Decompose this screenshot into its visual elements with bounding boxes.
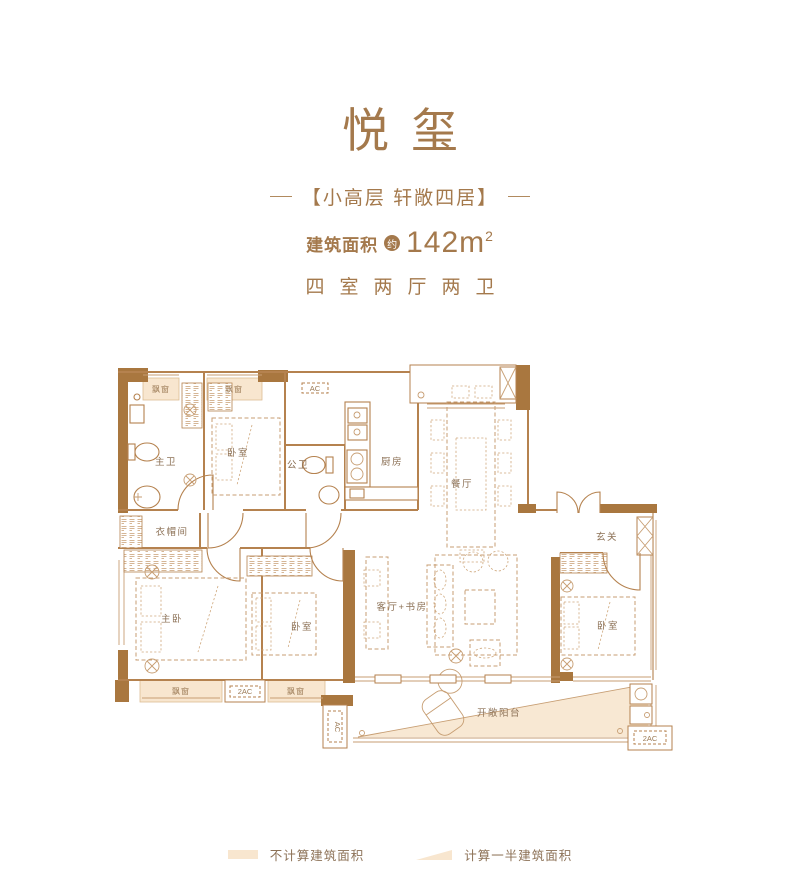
left-rule — [270, 196, 292, 197]
stove-icon — [347, 450, 367, 483]
washbasin-icon-2 — [319, 486, 339, 504]
ac-label-vertical: AC — [333, 722, 342, 733]
bay-windows-layer — [140, 378, 325, 702]
bay-window-label: 飘窗 — [172, 686, 190, 696]
toilet-tank-icon — [128, 444, 135, 460]
area-value: 142m2 — [406, 226, 494, 260]
room-label-master-bedroom: 主卧 — [161, 613, 183, 625]
ac-label: AC — [310, 384, 321, 393]
room-label-bedroom-top: 卧室 — [227, 447, 249, 459]
toilet-tank-icon-2 — [326, 457, 333, 473]
sliding-door-panel — [485, 675, 511, 683]
legend-swatch-triangle — [416, 850, 452, 860]
dining-table — [447, 402, 495, 547]
master-bedroom-door — [207, 548, 240, 581]
bed-master — [136, 578, 246, 660]
master-bedroom-wardrobe — [124, 550, 202, 572]
legend-label-no-area: 不计算建筑面积 — [270, 845, 365, 864]
subtitle: 【小高层 轩敞四居】 — [302, 183, 498, 210]
bedroom-mid-door — [310, 548, 343, 581]
header: 悦玺 【小高层 轩敞四居】 建筑面积 约 142m2 四室两厅两卫 — [0, 0, 800, 299]
right-rule — [508, 196, 530, 197]
furniture-layer — [136, 386, 635, 673]
room-label-living-study: 客厅+书房 — [376, 601, 427, 613]
legend: 不计算建筑面积 计算一半建筑面积 — [0, 845, 800, 864]
masterbath-door — [178, 475, 213, 510]
ac2-label: 2AC — [643, 734, 658, 743]
cabinet-icon — [630, 706, 652, 724]
room-layout-text: 四室两厅两卫 — [0, 272, 800, 299]
kitchen-sink-2 — [348, 425, 367, 440]
bedroom-right-wardrobe — [560, 553, 607, 573]
entry-door-left — [557, 492, 578, 513]
approx-badge: 约 — [384, 235, 400, 251]
entry-door-right — [579, 492, 600, 513]
masterbath-shelf — [182, 383, 202, 428]
room-label-kitchen: 厨房 — [381, 456, 403, 468]
ac2-label: 2AC — [238, 687, 253, 696]
bay-window-label: 飘窗 — [152, 384, 170, 394]
masterbath-tap-icon — [134, 394, 140, 400]
masterbath-cabinet-icon — [130, 405, 144, 423]
kitchen-appliance — [350, 489, 364, 498]
washer-icon — [630, 684, 652, 704]
tv-bench — [470, 640, 500, 666]
sliding-door-panel — [430, 675, 456, 683]
fixtures-layer — [128, 394, 418, 508]
page-title: 悦玺 — [0, 92, 800, 161]
room-label-foyer: 玄关 — [596, 531, 618, 543]
kitchen-sink-1 — [348, 408, 367, 423]
foyer-duct — [637, 517, 653, 555]
legend-item-half-area: 计算一半建筑面积 — [416, 845, 572, 864]
legend-swatch-rect — [228, 850, 258, 859]
sofa — [427, 565, 453, 647]
area-number: 142m — [406, 226, 485, 259]
room-label-cloakroom: 衣帽间 — [155, 526, 188, 538]
legend-label-half-area: 计算一半建筑面积 — [464, 845, 572, 864]
bay-window-label: 飘窗 — [225, 384, 243, 394]
living-rug — [435, 555, 517, 655]
room-label-public-bath: 公卫 — [287, 460, 309, 471]
room-label-master-bath: 主卫 — [155, 456, 177, 468]
bedroom-mid-wardrobe — [247, 556, 312, 576]
balcony-dot — [360, 731, 365, 736]
bay-window-label: 飘窗 — [287, 686, 305, 696]
floorplan-page: 悦玺 【小高层 轩敞四居】 建筑面积 约 142m2 四室两厅两卫 — [0, 0, 800, 878]
area-exponent: 2 — [485, 228, 494, 244]
room-label-dining: 餐厅 — [451, 478, 473, 490]
area-row: 建筑面积 约 142m2 — [0, 226, 800, 260]
floor-plan-svg: 飘窗 飘窗 AC 主卫 卧室 公卫 厨房 餐厅 玄关 衣帽间 主卧 卧室 客厅+… — [0, 350, 800, 770]
sliding-door-panel — [375, 675, 401, 683]
room-label-balcony: 开敞阳台 — [477, 707, 521, 719]
bedroom-top-door — [208, 513, 243, 548]
area-label: 建筑面积 — [306, 231, 378, 256]
coffee-table — [465, 590, 495, 624]
publicbath-door — [306, 513, 341, 548]
bedroom-right-door — [603, 553, 640, 590]
ac-platform — [410, 365, 516, 403]
legend-item-no-area: 不计算建筑面积 — [228, 845, 365, 864]
subtitle-row: 【小高层 轩敞四居】 — [0, 183, 800, 210]
cloakroom-shelf — [120, 516, 142, 548]
room-label-bedroom-right: 卧室 — [597, 620, 619, 632]
balcony-railing — [353, 738, 654, 742]
room-label-bedroom-mid: 卧室 — [291, 621, 313, 633]
